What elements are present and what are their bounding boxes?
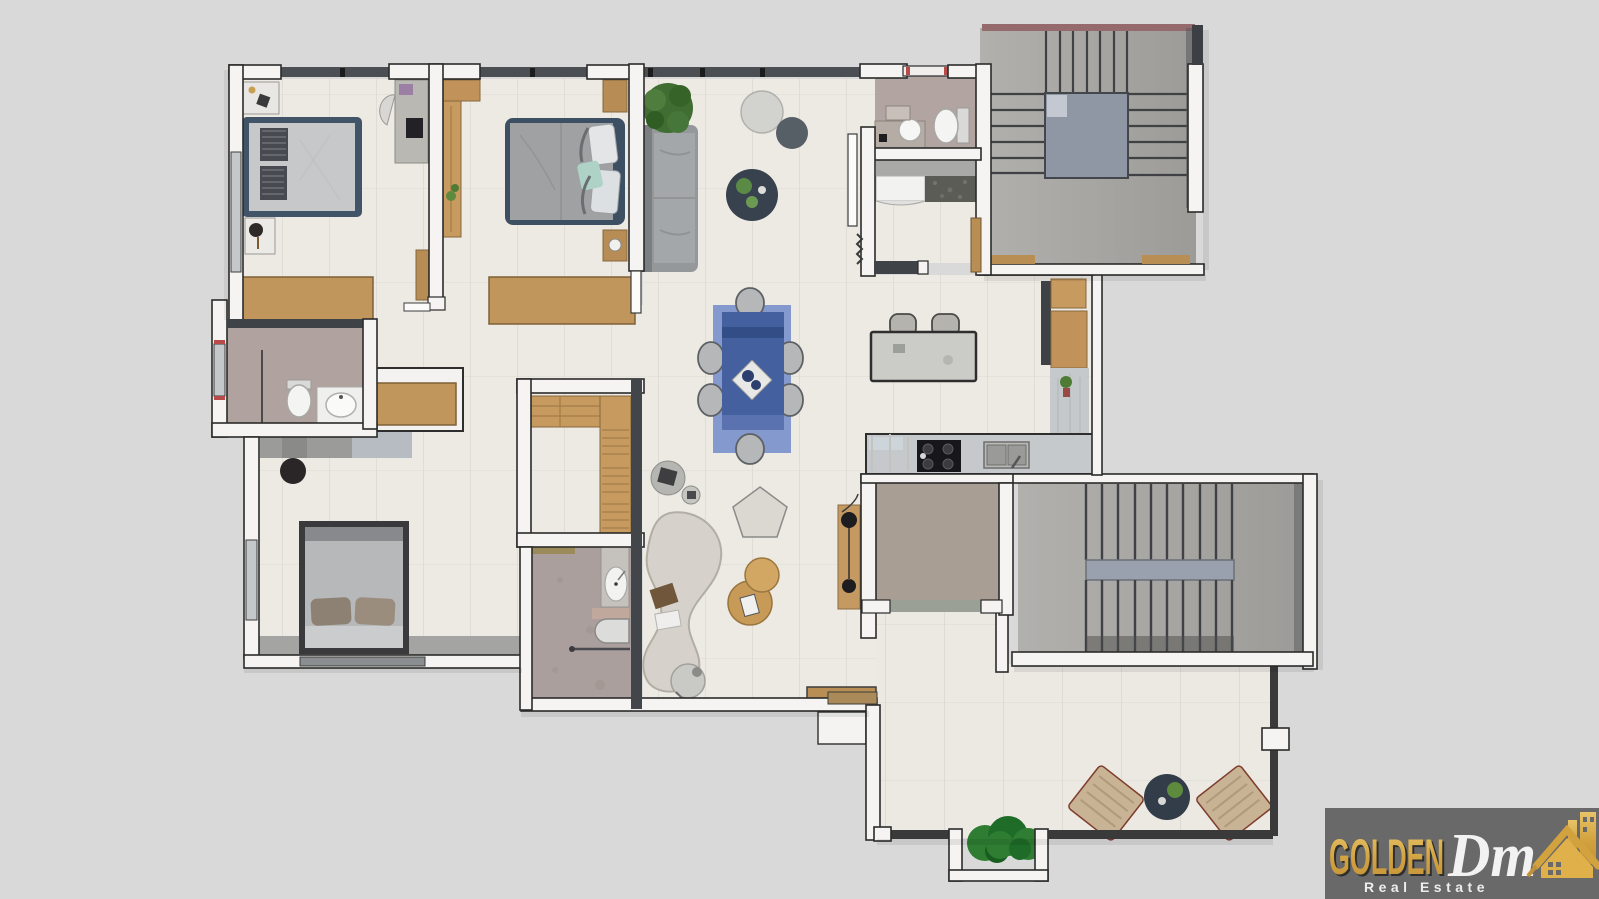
svg-text:Real Estate: Real Estate [1364, 879, 1489, 895]
svg-text:GOLDEN: GOLDEN [1329, 829, 1444, 885]
